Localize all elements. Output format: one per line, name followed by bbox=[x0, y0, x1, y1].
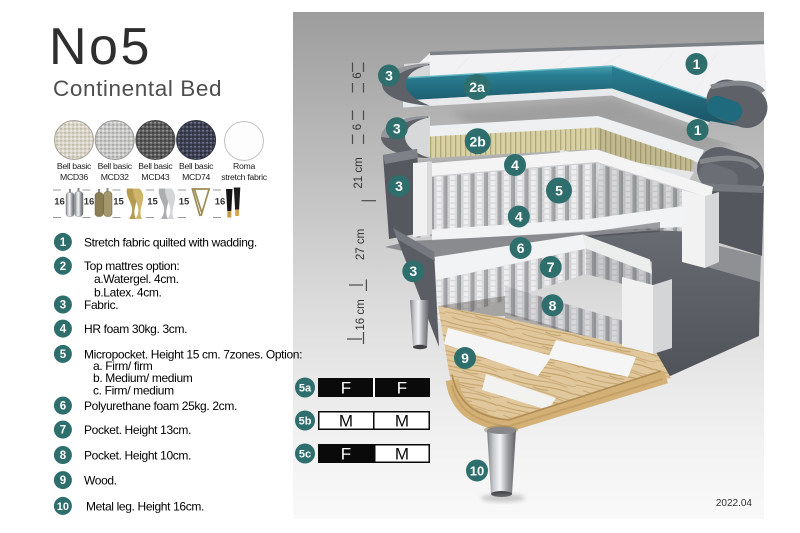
svg-text:15: 15 bbox=[147, 197, 158, 208]
svg-text:9: 9 bbox=[60, 475, 66, 487]
svg-text:3: 3 bbox=[393, 120, 401, 136]
svg-text:3: 3 bbox=[395, 178, 403, 194]
svg-text:M: M bbox=[395, 445, 409, 464]
svg-text:16: 16 bbox=[54, 197, 65, 208]
svg-text:1: 1 bbox=[60, 237, 67, 249]
svg-text:MCD32: MCD32 bbox=[101, 172, 129, 182]
svg-text:a.Watergel. 4cm.: a.Watergel. 4cm. bbox=[94, 272, 179, 286]
svg-text:Polyurethane foam 25kg. 2cm.: Polyurethane foam 25kg. 2cm. bbox=[84, 399, 237, 413]
svg-text:15: 15 bbox=[179, 197, 190, 208]
svg-text:7: 7 bbox=[60, 425, 66, 437]
svg-text:5a: 5a bbox=[299, 383, 312, 395]
svg-text:16: 16 bbox=[84, 197, 95, 208]
svg-text:6: 6 bbox=[352, 72, 364, 78]
svg-text:1: 1 bbox=[694, 122, 702, 138]
svg-text:15: 15 bbox=[113, 197, 124, 208]
svg-text:F: F bbox=[397, 379, 407, 398]
svg-text:2022.04: 2022.04 bbox=[716, 498, 753, 509]
svg-text:5c: 5c bbox=[299, 449, 311, 461]
svg-text:b. Medium/ medium: b. Medium/ medium bbox=[93, 371, 193, 385]
svg-text:M: M bbox=[395, 412, 409, 431]
svg-text:5b: 5b bbox=[299, 416, 312, 428]
svg-text:Bell basic: Bell basic bbox=[98, 161, 133, 171]
svg-text:7: 7 bbox=[547, 259, 555, 275]
svg-text:6: 6 bbox=[352, 124, 364, 130]
svg-text:5: 5 bbox=[555, 183, 563, 199]
svg-text:4: 4 bbox=[60, 324, 67, 336]
svg-text:Continental Bed: Continental Bed bbox=[53, 76, 222, 101]
svg-text:8: 8 bbox=[60, 450, 67, 462]
svg-text:6: 6 bbox=[517, 240, 525, 256]
svg-text:M: M bbox=[339, 412, 353, 431]
svg-text:1: 1 bbox=[693, 56, 701, 72]
svg-text:9: 9 bbox=[461, 350, 469, 366]
svg-text:MCD43: MCD43 bbox=[141, 172, 169, 182]
svg-text:6: 6 bbox=[60, 401, 66, 413]
svg-text:2: 2 bbox=[60, 261, 66, 273]
svg-text:F: F bbox=[341, 445, 351, 464]
svg-text:Stretch fabric quilted with wa: Stretch fabric quilted with wadding. bbox=[84, 235, 257, 249]
svg-text:27 cm: 27 cm bbox=[355, 229, 367, 260]
svg-text:MCD74: MCD74 bbox=[182, 172, 210, 182]
svg-text:Wood.: Wood. bbox=[84, 474, 117, 488]
svg-text:10: 10 bbox=[57, 501, 69, 513]
svg-text:16 cm: 16 cm bbox=[355, 299, 367, 330]
svg-text:Bell basic: Bell basic bbox=[138, 161, 173, 171]
svg-text:21 cm: 21 cm bbox=[353, 157, 365, 188]
svg-text:Top mattres option:: Top mattres option: bbox=[84, 259, 179, 273]
svg-text:4: 4 bbox=[511, 157, 519, 173]
svg-text:stretch fabric: stretch fabric bbox=[221, 172, 267, 182]
svg-text:Pocket. Height 10cm.: Pocket. Height 10cm. bbox=[84, 448, 191, 462]
svg-text:c. Firm/ medium: c. Firm/ medium bbox=[93, 384, 174, 398]
svg-text:4: 4 bbox=[515, 209, 523, 225]
svg-text:Roma: Roma bbox=[233, 161, 255, 171]
svg-text:2a: 2a bbox=[469, 79, 485, 95]
svg-text:16: 16 bbox=[215, 197, 226, 208]
svg-text:HR foam 30kg. 3cm.: HR foam 30kg. 3cm. bbox=[84, 322, 187, 336]
svg-text:5: 5 bbox=[60, 349, 67, 361]
svg-text:Pocket. Height 13cm.: Pocket. Height 13cm. bbox=[84, 423, 191, 437]
svg-text:Metal leg. Height 16cm.: Metal leg. Height 16cm. bbox=[86, 499, 204, 513]
svg-text:MCD36: MCD36 bbox=[60, 172, 88, 182]
svg-text:2b: 2b bbox=[470, 133, 486, 149]
svg-text:3: 3 bbox=[409, 263, 417, 279]
svg-text:3: 3 bbox=[60, 300, 66, 312]
svg-text:Bell basic: Bell basic bbox=[179, 161, 214, 171]
svg-text:F: F bbox=[341, 379, 351, 398]
svg-text:No5: No5 bbox=[49, 18, 152, 76]
svg-text:Fabric.: Fabric. bbox=[84, 298, 118, 312]
svg-text:10: 10 bbox=[470, 464, 484, 479]
svg-text:Bell basic: Bell basic bbox=[57, 161, 92, 171]
svg-text:3: 3 bbox=[385, 68, 393, 84]
svg-text:8: 8 bbox=[549, 297, 557, 313]
